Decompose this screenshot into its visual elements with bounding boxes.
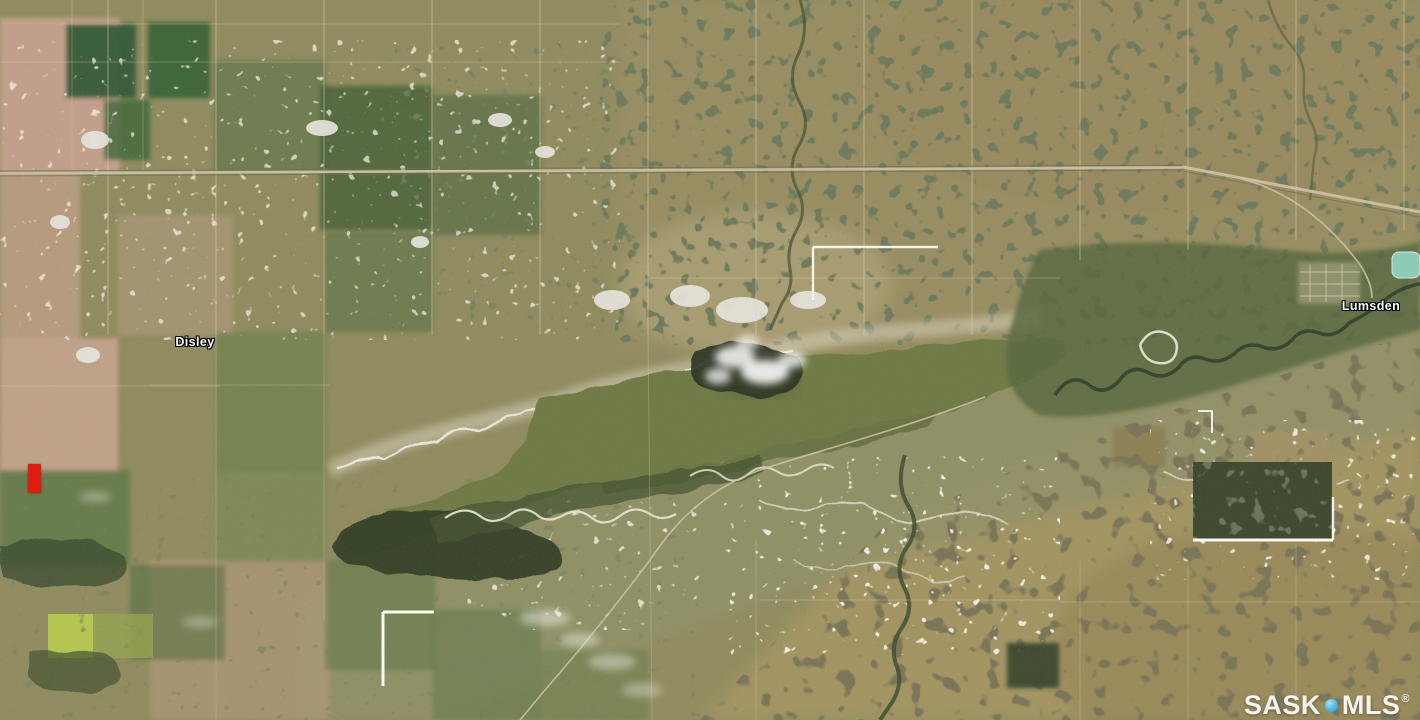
registered-symbol: ® (1401, 694, 1410, 705)
place-label-disley: Disley (175, 335, 214, 349)
watermark-sask: SASK (1244, 692, 1321, 719)
map-canvas[interactable]: Disley Lumsden SASK MLS ® (0, 0, 1420, 720)
mls-dot-icon (1325, 699, 1338, 712)
property-marker[interactable] (28, 464, 41, 493)
sask-mls-watermark: SASK MLS ® (1244, 692, 1410, 719)
place-label-lumsden: Lumsden (1342, 299, 1400, 313)
satellite-imagery (0, 0, 1420, 720)
photo-grain (0, 0, 1420, 720)
watermark-mls: MLS (1342, 692, 1401, 719)
